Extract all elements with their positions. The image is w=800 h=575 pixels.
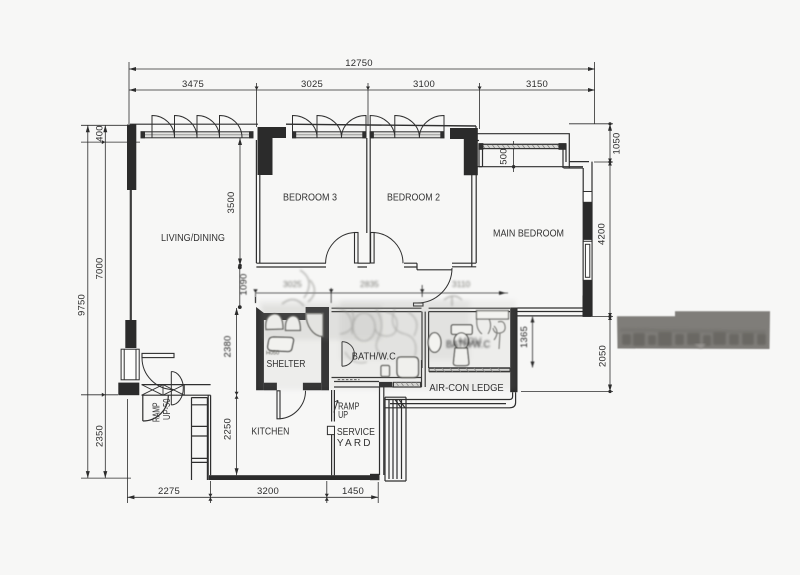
svg-text:RAMP: RAMP — [152, 402, 163, 422]
svg-text:UP-50: UP-50 — [162, 398, 173, 420]
svg-text:1050: 1050 — [612, 133, 623, 155]
svg-text:3100: 3100 — [413, 79, 435, 90]
svg-text:4200: 4200 — [597, 223, 608, 245]
svg-text:2050: 2050 — [598, 345, 609, 367]
svg-text:3475: 3475 — [182, 79, 204, 90]
svg-text:2250: 2250 — [223, 418, 234, 440]
svg-text:H050: H050 — [266, 351, 279, 357]
svg-text:500: 500 — [499, 148, 510, 164]
svg-text:KITCHEN: KITCHEN — [251, 426, 289, 437]
svg-text:2835: 2835 — [360, 279, 379, 289]
svg-text:1365: 1365 — [519, 326, 530, 348]
svg-text:MAIN BEDROOM: MAIN BEDROOM — [493, 228, 564, 239]
svg-text:BATH/W.C: BATH/W.C — [352, 351, 396, 362]
svg-text:UP: UP — [338, 410, 348, 421]
svg-text:2275: 2275 — [158, 486, 180, 497]
svg-text:BEDROOM 2: BEDROOM 2 — [387, 193, 440, 204]
svg-text:2380: 2380 — [223, 336, 234, 358]
svg-text:2350: 2350 — [95, 425, 106, 447]
svg-text:3025: 3025 — [301, 79, 323, 90]
svg-text:3200: 3200 — [257, 486, 279, 497]
svg-text:400: 400 — [95, 125, 106, 141]
svg-text:3500: 3500 — [226, 192, 237, 214]
svg-text:3110: 3110 — [452, 279, 471, 289]
svg-text:3150: 3150 — [526, 79, 548, 90]
svg-text:9750: 9750 — [77, 294, 88, 316]
svg-text:7000: 7000 — [95, 258, 106, 280]
svg-text:3025: 3025 — [283, 279, 302, 289]
svg-text:SHELTER: SHELTER — [267, 359, 306, 370]
svg-text:AIR-CON LEDGE: AIR-CON LEDGE — [429, 383, 504, 394]
svg-text:LIVING/DINING: LIVING/DINING — [161, 233, 225, 244]
svg-text:SERVICE: SERVICE — [337, 427, 375, 438]
svg-text:1090: 1090 — [239, 274, 250, 296]
svg-text:BEDROOM 3: BEDROOM 3 — [283, 193, 337, 204]
svg-text:MOV: MOV — [459, 337, 482, 348]
svg-text:YARD: YARD — [337, 438, 373, 449]
svg-text:1450: 1450 — [342, 486, 364, 497]
svg-text:12750: 12750 — [345, 58, 372, 69]
